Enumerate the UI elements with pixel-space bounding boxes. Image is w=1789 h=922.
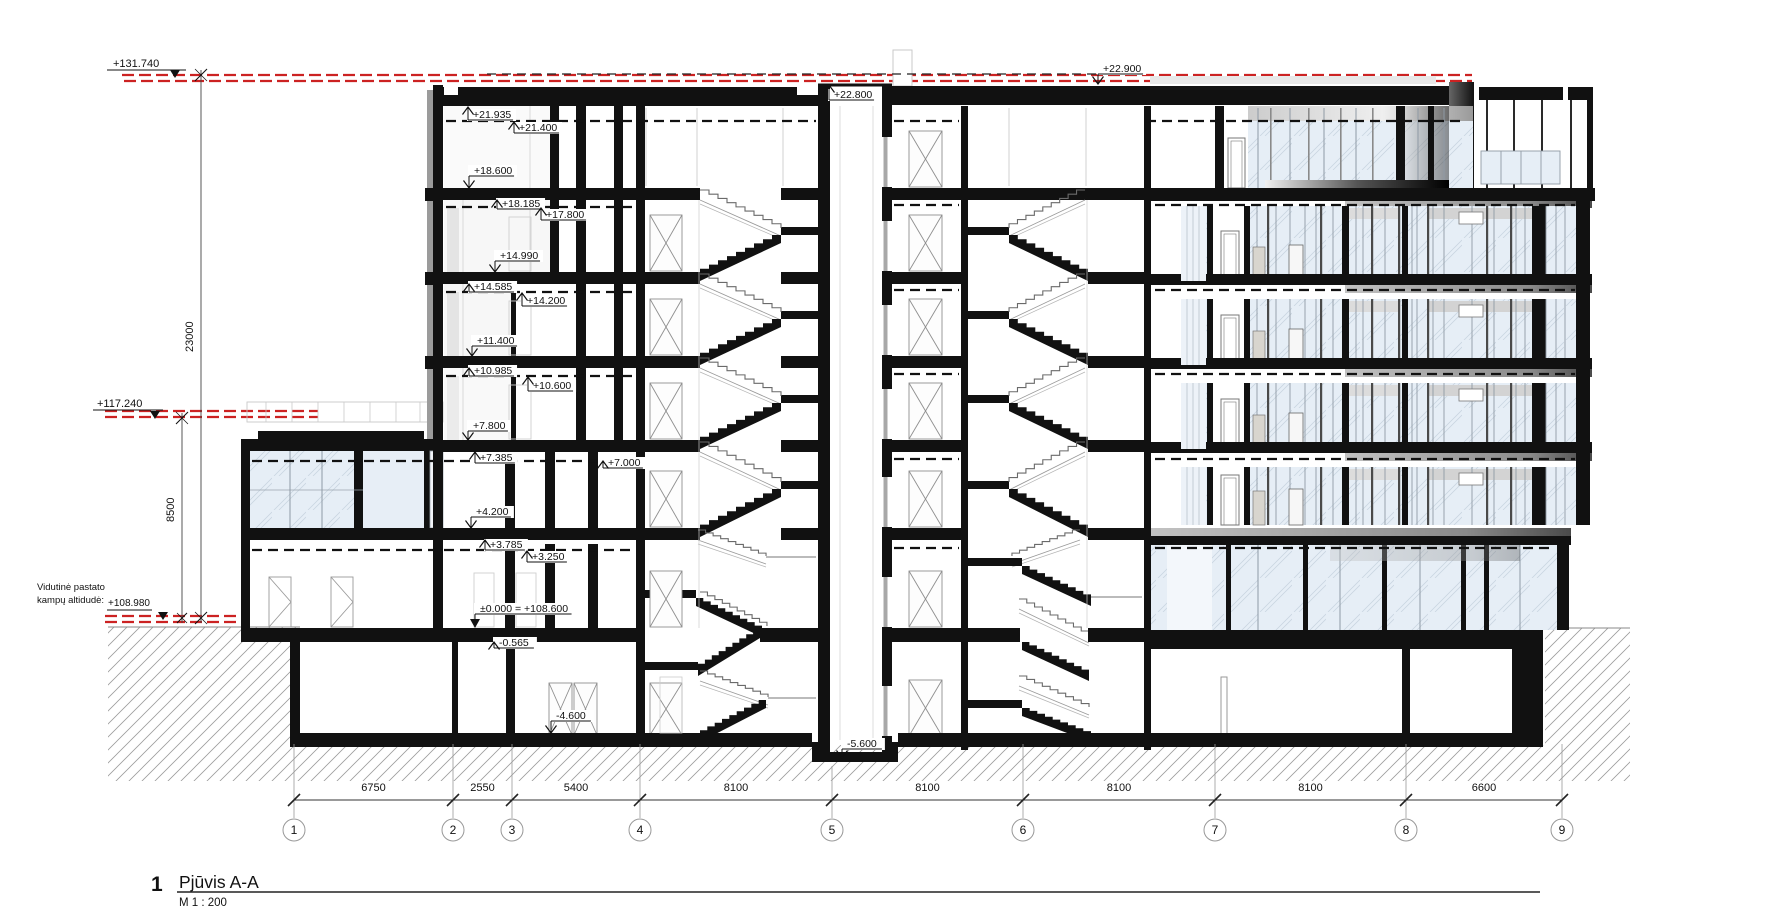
svg-text:+108.980: +108.980 bbox=[108, 598, 150, 609]
svg-text:6: 6 bbox=[1020, 823, 1027, 837]
svg-text:+7.800: +7.800 bbox=[473, 420, 506, 432]
svg-text:23000: 23000 bbox=[184, 321, 196, 352]
svg-text:kampų altidudė:: kampų altidudė: bbox=[37, 595, 104, 606]
svg-text:Vidutinė pastato: Vidutinė pastato bbox=[37, 582, 105, 593]
svg-text:+7.000: +7.000 bbox=[608, 457, 641, 469]
svg-text:+117.240: +117.240 bbox=[97, 398, 142, 410]
svg-text:8500: 8500 bbox=[165, 498, 177, 522]
svg-text:+3.250: +3.250 bbox=[532, 551, 565, 563]
svg-text:+18.600: +18.600 bbox=[474, 165, 512, 177]
svg-text:-5.600: -5.600 bbox=[847, 738, 877, 750]
svg-text:+21.935: +21.935 bbox=[473, 109, 511, 121]
svg-text:M 1 : 200: M 1 : 200 bbox=[179, 897, 227, 909]
svg-text:+14.200: +14.200 bbox=[527, 295, 565, 307]
svg-text:+4.200: +4.200 bbox=[476, 506, 509, 518]
svg-text:Pjūvis A-A: Pjūvis A-A bbox=[179, 872, 259, 892]
svg-text:+3.785: +3.785 bbox=[490, 539, 523, 551]
svg-text:+21.400: +21.400 bbox=[519, 122, 557, 134]
svg-text:3: 3 bbox=[509, 823, 516, 837]
svg-text:+10.985: +10.985 bbox=[474, 365, 512, 377]
svg-text:5400: 5400 bbox=[564, 782, 588, 794]
svg-text:1: 1 bbox=[291, 823, 298, 837]
svg-text:+17.800: +17.800 bbox=[546, 209, 584, 221]
svg-text:+14.585: +14.585 bbox=[474, 281, 512, 293]
svg-text:6600: 6600 bbox=[1472, 782, 1496, 794]
svg-text:5: 5 bbox=[829, 823, 836, 837]
svg-text:+22.900: +22.900 bbox=[1103, 63, 1141, 75]
svg-text:8100: 8100 bbox=[915, 782, 939, 794]
svg-text:1: 1 bbox=[151, 873, 163, 896]
svg-text:4: 4 bbox=[637, 823, 644, 837]
svg-text:8100: 8100 bbox=[1298, 782, 1322, 794]
svg-text:2550: 2550 bbox=[470, 782, 494, 794]
svg-text:2: 2 bbox=[450, 823, 457, 837]
svg-text:+10.600: +10.600 bbox=[533, 380, 571, 392]
svg-text:6750: 6750 bbox=[361, 782, 385, 794]
svg-text:+18.185: +18.185 bbox=[502, 198, 540, 210]
svg-text:7: 7 bbox=[1212, 823, 1219, 837]
svg-text:8100: 8100 bbox=[1107, 782, 1131, 794]
svg-text:±0.000 = +108.600: ±0.000 = +108.600 bbox=[480, 603, 568, 615]
svg-text:-4.600: -4.600 bbox=[556, 710, 586, 722]
svg-text:+14.990: +14.990 bbox=[500, 250, 538, 262]
svg-text:+22.800: +22.800 bbox=[834, 89, 872, 101]
svg-text:+11.400: +11.400 bbox=[477, 335, 515, 347]
svg-text:+7.385: +7.385 bbox=[480, 452, 513, 464]
svg-text:8: 8 bbox=[1403, 823, 1410, 837]
svg-text:9: 9 bbox=[1559, 823, 1566, 837]
svg-text:8100: 8100 bbox=[724, 782, 748, 794]
svg-text:-0.565: -0.565 bbox=[499, 637, 529, 649]
svg-text:+131.740: +131.740 bbox=[113, 58, 159, 70]
